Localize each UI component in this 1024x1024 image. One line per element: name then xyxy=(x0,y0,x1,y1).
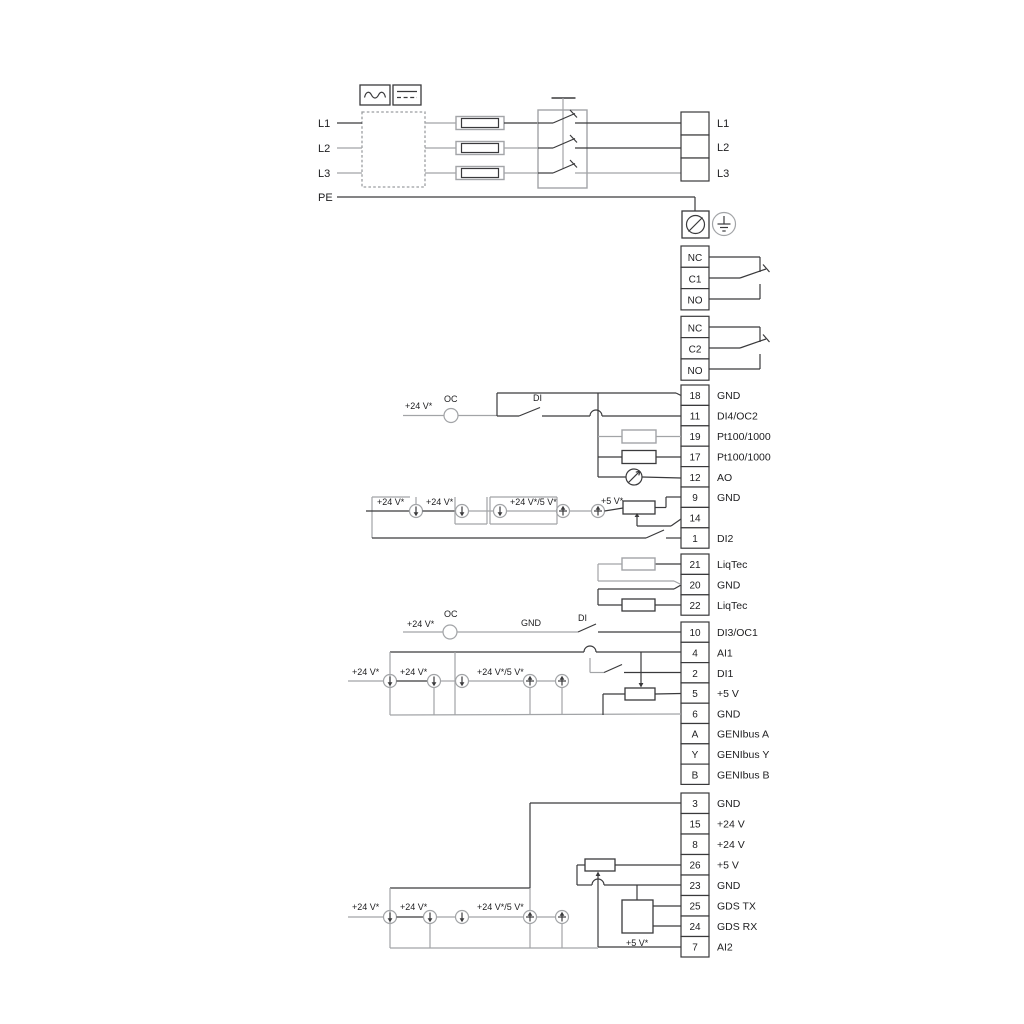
analog-output-meter-icon xyxy=(598,469,681,485)
di-label: DI xyxy=(533,393,542,403)
plus24-label: +24 V* xyxy=(352,667,380,677)
terminal-label: GND xyxy=(717,580,741,592)
current-sink-icon xyxy=(456,911,469,924)
relay1-nc: NC xyxy=(688,253,702,264)
terminal-label: Pt100/1000 xyxy=(717,431,771,443)
terminal-number: 23 xyxy=(689,881,701,892)
terminal-label: GND xyxy=(717,390,741,402)
power-out-label-l2: L2 xyxy=(717,142,729,154)
relay2-no: NO xyxy=(688,366,703,377)
plus24-label: +24 V* xyxy=(352,902,380,912)
terminal-label: GDS RX xyxy=(717,921,757,933)
terminal-number: 10 xyxy=(689,628,701,639)
terminal-label: DI3/OC1 xyxy=(717,627,758,639)
terminal-number: 6 xyxy=(692,709,698,720)
open-collector-icon xyxy=(444,409,458,423)
terminal-label: AI2 xyxy=(717,942,733,954)
power-in-label-pe: PE xyxy=(318,192,333,204)
relay1-contact-icon xyxy=(709,257,770,299)
plus24or5-label: +24 V*/5 V* xyxy=(477,902,524,912)
relay1-no: NO xyxy=(688,296,703,307)
terminal-number: 3 xyxy=(692,799,698,810)
terminal-number: 24 xyxy=(689,922,701,933)
terminal-label: Pt100/1000 xyxy=(717,451,771,463)
wiring-diagram-canvas: L1 L2 L3 PE xyxy=(0,0,1024,1024)
output-wires xyxy=(575,123,681,173)
terminal-label: GENIbus Y xyxy=(717,749,769,761)
oc-label: OC xyxy=(444,609,458,619)
io-strip-1-wiring: +24 V* OC DI xyxy=(366,393,681,538)
terminal-label: GENIbus B xyxy=(717,769,770,781)
pt100-sensor-icon xyxy=(598,430,681,443)
plus24-label: +24 V* xyxy=(407,619,435,629)
di-switch-icon xyxy=(578,624,681,632)
ai2-supply-chain: +24 V* +24 V* +24 V*/5 V* xyxy=(348,888,598,948)
main-switch-icon xyxy=(538,98,587,188)
di-label: DI xyxy=(578,613,587,623)
terminal-number: 1 xyxy=(692,534,698,545)
mains-terminal-block: L1 L2 L3 xyxy=(681,112,729,181)
liqtec-sensor-icon xyxy=(598,585,681,611)
terminal-label: AI1 xyxy=(717,648,733,660)
oc-label: OC xyxy=(444,394,458,404)
terminal-number: 12 xyxy=(689,473,701,484)
terminal-label: +5 V xyxy=(717,860,739,872)
power-in-label-l1: L1 xyxy=(318,118,330,130)
io-strip-2-wiring: +24 V* OC GND DI +24 V* +24 V* xyxy=(348,609,681,715)
di1-switch-icon xyxy=(590,658,681,673)
ai3-supply-chain: +24 V* +24 V* +24 V*/5 V* xyxy=(366,496,681,538)
terminal-number: 14 xyxy=(689,514,701,525)
relay-1: NC C1 NO xyxy=(681,246,770,310)
terminal-number: 9 xyxy=(692,493,698,504)
pt100-sensor-icon xyxy=(598,451,681,464)
current-sink-icon xyxy=(428,675,441,688)
converter-box xyxy=(362,112,425,187)
current-sink-icon xyxy=(410,505,423,518)
gds-sensor-icon: +5 V* xyxy=(622,885,681,948)
current-source-icon xyxy=(556,675,569,688)
power-in-label-l3: L3 xyxy=(318,168,330,180)
terminal-label: LiqTec xyxy=(717,600,747,612)
terminal-label: DI1 xyxy=(717,668,734,680)
current-source-icon xyxy=(592,505,605,518)
terminal-label: +24 V xyxy=(717,819,745,831)
current-sink-icon xyxy=(456,675,469,688)
di-switch-icon xyxy=(497,408,681,417)
plus24or5-label: +24 V*/5 V* xyxy=(510,497,557,507)
terminal-number: 8 xyxy=(692,840,698,851)
terminal-label: +24 V xyxy=(717,839,745,851)
terminal-label: GND xyxy=(717,880,741,892)
plus24-label: +24 V* xyxy=(405,401,433,411)
di2-switch-icon xyxy=(372,530,681,538)
terminal-number: 20 xyxy=(689,581,701,592)
terminal-number: 22 xyxy=(689,601,701,612)
terminal-number: 7 xyxy=(692,943,698,954)
relay2-contact-icon xyxy=(709,327,770,369)
ac-symbol-icon xyxy=(360,85,390,105)
terminal-number: 26 xyxy=(689,861,701,872)
terminal-number: Y xyxy=(692,750,699,761)
fuse-l1-icon xyxy=(425,117,538,130)
terminal-number: A xyxy=(692,730,699,741)
potentiometer-icon xyxy=(603,652,681,715)
io-strip-2: 10 4 2 5 6 A Y B DI3/OC1 AI1 DI1 +5 V GN… xyxy=(681,622,770,784)
gnd-label: GND xyxy=(521,618,542,628)
terminal-label: +5 V xyxy=(717,688,739,700)
terminal-label: GND xyxy=(717,798,741,810)
terminal-label: GND xyxy=(717,708,741,720)
terminal-number: 21 xyxy=(689,560,701,571)
current-sink-icon xyxy=(494,505,507,518)
io-strip-3-wiring: +5 V* +24 V* +24 V* xyxy=(348,803,681,948)
power-out-label-l3: L3 xyxy=(717,168,729,180)
relay2-nc: NC xyxy=(688,323,702,334)
liqtec-sensor-icon xyxy=(598,558,681,585)
current-sink-icon xyxy=(424,911,437,924)
terminal-label: GDS TX xyxy=(717,901,756,913)
plus24-label: +24 V* xyxy=(400,902,428,912)
fuse-l2-icon xyxy=(425,142,538,155)
terminal-label: GND xyxy=(717,492,741,504)
relay2-c2: C2 xyxy=(689,345,702,356)
pe-screw-terminal-icon xyxy=(682,211,709,238)
current-source-icon xyxy=(557,505,570,518)
plus24-label: +24 V* xyxy=(400,667,428,677)
current-source-icon xyxy=(556,911,569,924)
wiring-diagram: L1 L2 L3 PE xyxy=(0,0,1024,1024)
terminal-number: 17 xyxy=(689,452,701,463)
ai1-supply-chain: +24 V* +24 V* +24 V*/5 V* xyxy=(348,646,681,715)
relay-2: NC C2 NO xyxy=(681,316,770,380)
terminal-number: 15 xyxy=(689,820,701,831)
dc-symbol-icon xyxy=(393,85,421,105)
liqtec-strip: 21 20 22 LiqTec GND LiqTec xyxy=(598,554,747,615)
open-collector-icon xyxy=(443,625,457,639)
terminal-label: DI4/OC2 xyxy=(717,411,758,423)
current-source-icon xyxy=(524,675,537,688)
terminal-number: 5 xyxy=(692,689,698,700)
power-out-label-l1: L1 xyxy=(717,118,729,130)
plus24-label: +24 V* xyxy=(377,497,405,507)
terminal-number: 19 xyxy=(689,432,701,443)
terminal-label: GENIbus A xyxy=(717,729,769,741)
io-strip-1: 18 11 19 17 12 9 14 1 GND DI4/OC2 Pt100/… xyxy=(681,385,771,548)
terminal-label: AO xyxy=(717,472,732,484)
terminal-number: 11 xyxy=(690,412,701,423)
power-in-label-l2: L2 xyxy=(318,143,330,155)
io-strip-3: 3 15 8 26 23 25 24 7 GND +24 V +24 V +5 … xyxy=(681,793,757,957)
terminal-label: LiqTec xyxy=(717,559,747,571)
fuse-l3-icon xyxy=(425,167,538,180)
terminal-number: 2 xyxy=(692,669,698,680)
terminal-label: DI2 xyxy=(717,533,734,545)
current-source-icon xyxy=(524,911,537,924)
terminal-number: 18 xyxy=(689,391,701,402)
current-sink-icon xyxy=(456,505,469,518)
terminal-number: B xyxy=(692,770,699,781)
power-section: L1 L2 L3 PE xyxy=(318,85,736,238)
plus5-label: +5 V* xyxy=(601,496,624,506)
terminal-number: 25 xyxy=(689,902,701,913)
relay1-c1: C1 xyxy=(689,274,702,285)
terminal-number: 4 xyxy=(692,649,698,660)
earth-ground-icon xyxy=(713,213,736,236)
plus24-label: +24 V* xyxy=(426,497,454,507)
plus24or5-label: +24 V*/5 V* xyxy=(477,667,524,677)
